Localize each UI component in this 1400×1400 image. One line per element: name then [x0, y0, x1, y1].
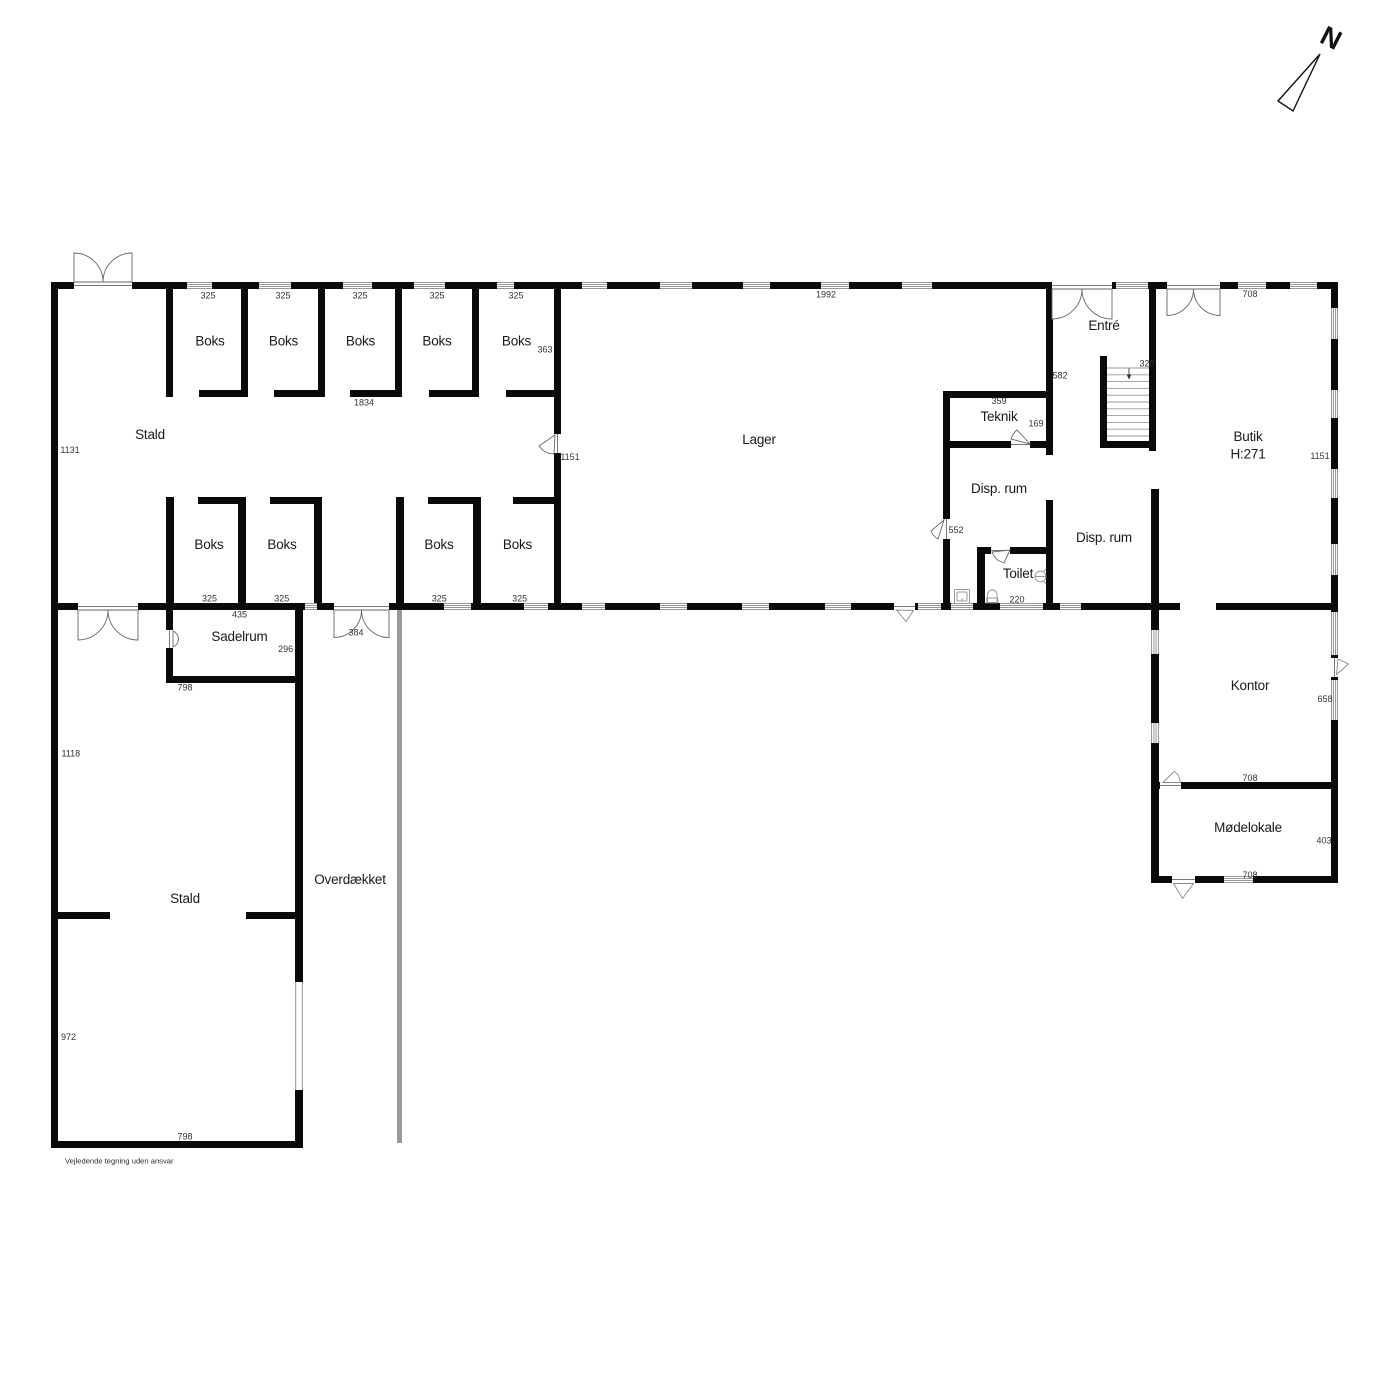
svg-text:Vejledende tegning uden ansvar: Vejledende tegning uden ansvar	[65, 1157, 174, 1166]
svg-text:Disp. rum: Disp. rum	[1076, 530, 1132, 545]
svg-text:552: 552	[948, 525, 963, 535]
svg-text:403: 403	[1316, 836, 1331, 846]
svg-text:1118: 1118	[62, 749, 81, 759]
svg-text:1131: 1131	[60, 445, 79, 455]
svg-text:220: 220	[1009, 595, 1024, 605]
svg-text:Sadelrum: Sadelrum	[211, 629, 267, 644]
svg-text:Boks: Boks	[267, 537, 297, 552]
svg-text:325: 325	[274, 594, 289, 604]
svg-text:708: 708	[1242, 870, 1257, 880]
svg-text:Stald: Stald	[135, 427, 165, 442]
svg-text:435: 435	[232, 610, 247, 620]
svg-text:Lager: Lager	[742, 432, 776, 447]
svg-text:325: 325	[202, 594, 217, 604]
svg-text:363: 363	[537, 345, 552, 355]
svg-text:Boks: Boks	[503, 537, 533, 552]
svg-text:325: 325	[429, 291, 444, 301]
svg-text:582: 582	[1052, 371, 1067, 381]
svg-text:Butik: Butik	[1233, 429, 1262, 444]
svg-text:Teknik: Teknik	[980, 409, 1018, 424]
svg-text:Kontor: Kontor	[1231, 678, 1270, 693]
svg-text:Boks: Boks	[502, 334, 532, 349]
svg-text:Boks: Boks	[194, 537, 224, 552]
svg-text:Entré: Entré	[1088, 318, 1119, 333]
svg-text:1151: 1151	[1310, 451, 1329, 461]
svg-text:Disp. rum: Disp. rum	[971, 481, 1027, 496]
svg-text:325: 325	[432, 594, 447, 604]
svg-text:325: 325	[352, 291, 367, 301]
svg-text:325: 325	[275, 291, 290, 301]
svg-text:Stald: Stald	[170, 891, 200, 906]
svg-text:Overdækket: Overdækket	[314, 872, 386, 887]
svg-text:Boks: Boks	[346, 334, 376, 349]
svg-text:658: 658	[1317, 694, 1332, 704]
svg-text:708: 708	[1242, 773, 1257, 783]
svg-text:325: 325	[512, 594, 527, 604]
svg-text:Boks: Boks	[269, 334, 299, 349]
svg-text:972: 972	[61, 1032, 76, 1042]
svg-text:1151: 1151	[560, 452, 579, 462]
svg-text:Boks: Boks	[424, 537, 454, 552]
svg-text:708: 708	[1242, 289, 1257, 299]
svg-text:H:271: H:271	[1230, 447, 1265, 462]
svg-text:296: 296	[278, 644, 293, 654]
svg-text:325: 325	[200, 291, 215, 301]
svg-text:Boks: Boks	[422, 334, 452, 349]
svg-text:320: 320	[1139, 359, 1154, 369]
svg-text:Toilet: Toilet	[1003, 566, 1034, 581]
svg-text:798: 798	[177, 683, 192, 693]
svg-text:1992: 1992	[816, 290, 836, 300]
svg-text:169: 169	[1028, 419, 1043, 429]
svg-text:Boks: Boks	[195, 334, 225, 349]
svg-text:325: 325	[508, 291, 523, 301]
svg-text:1834: 1834	[354, 398, 374, 408]
svg-text:Mødelokale: Mødelokale	[1214, 820, 1282, 835]
svg-text:384: 384	[348, 628, 363, 638]
svg-text:798: 798	[177, 1132, 192, 1142]
svg-text:359: 359	[991, 396, 1006, 406]
